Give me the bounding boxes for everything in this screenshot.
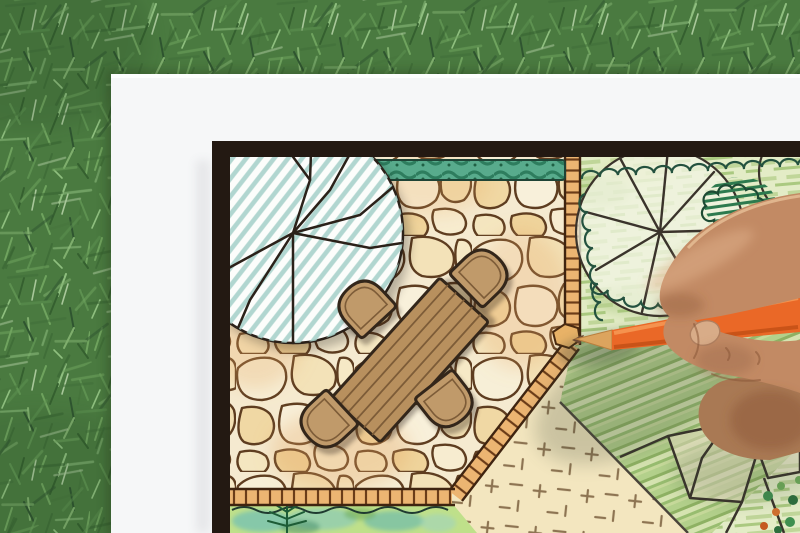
hedge-texture: [360, 160, 565, 180]
hedge-strip: [360, 160, 565, 180]
frame-top-band: [212, 141, 800, 158]
paper-edge-highlight: [111, 74, 800, 78]
planting-bed: [230, 503, 477, 533]
frame-left-band: [212, 141, 231, 533]
scene-svg: [0, 0, 800, 533]
tile-rungs-horizontal: [230, 489, 452, 505]
frame-cast-shadow: [196, 160, 210, 533]
photo-scene: [0, 0, 800, 533]
